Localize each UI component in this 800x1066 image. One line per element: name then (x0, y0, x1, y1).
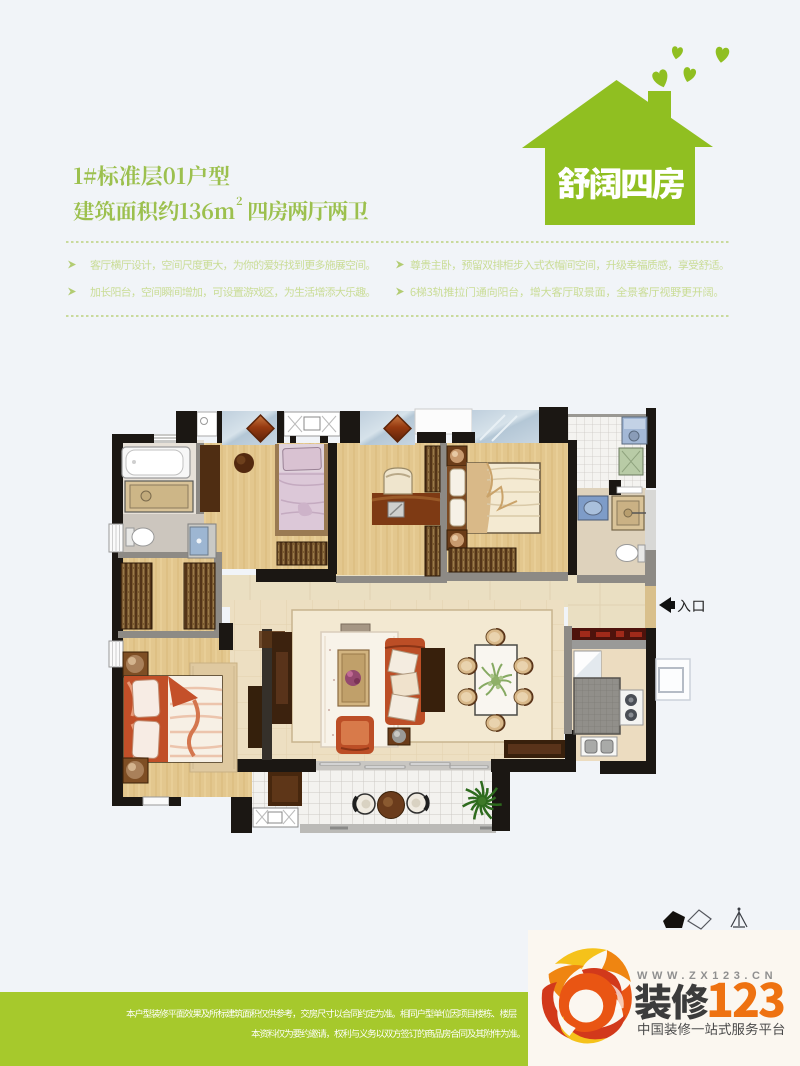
svg-text:WWW.ZX123.CN: WWW.ZX123.CN (637, 970, 777, 982)
